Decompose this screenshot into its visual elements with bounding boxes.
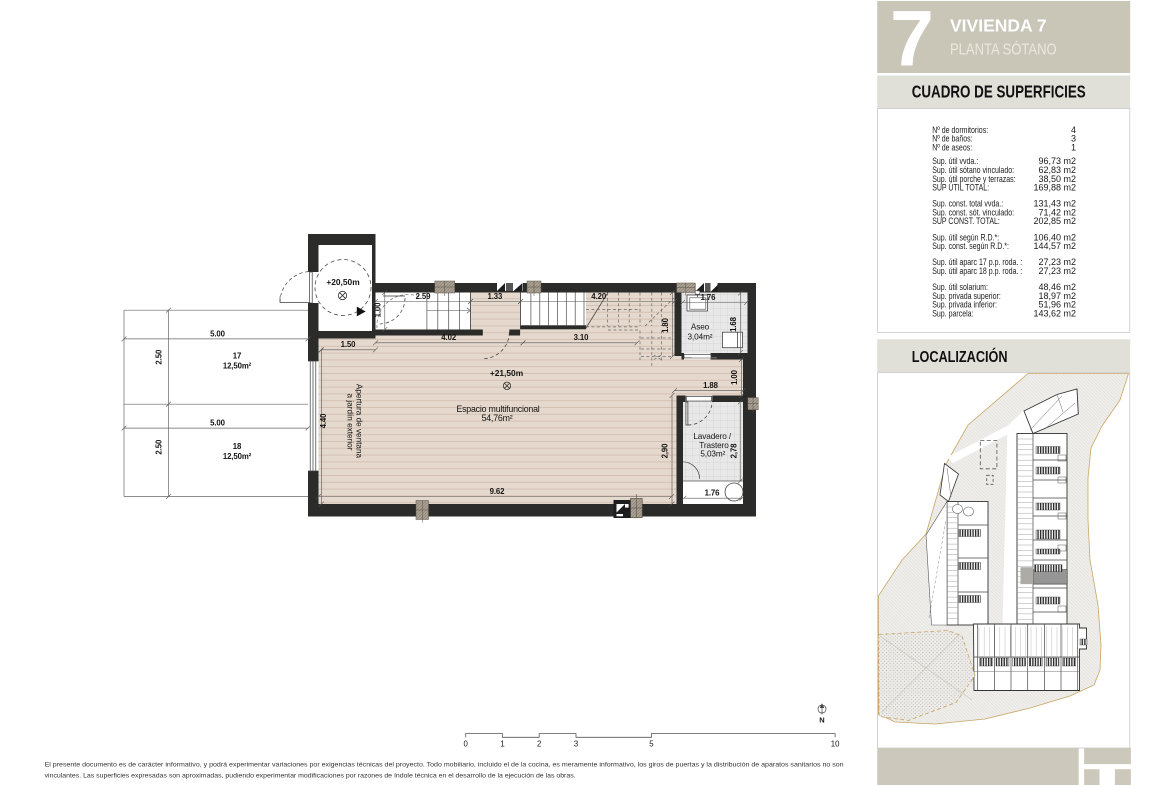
svg-text:SUP ÚTIL TOTAL:: SUP ÚTIL TOTAL: (932, 183, 989, 193)
svg-text:CUADRO DE SUPERFICIES: CUADRO DE SUPERFICIES (912, 83, 1086, 102)
svg-text:Nº de aseos:: Nº de aseos: (932, 143, 972, 153)
svg-text:54,76m²: 54,76m² (482, 413, 513, 423)
svg-text:PLANTA SÓTANO: PLANTA SÓTANO (950, 40, 1057, 59)
svg-text:4.40: 4.40 (319, 413, 328, 429)
svg-text:2.50: 2.50 (155, 439, 164, 455)
svg-text:5,03m²: 5,03m² (700, 450, 725, 459)
svg-text:1.68: 1.68 (729, 316, 738, 332)
svg-text:Apertura de ventana: Apertura de ventana (355, 384, 364, 459)
svg-text:4.02: 4.02 (441, 333, 457, 342)
svg-text:+20,50m: +20,50m (326, 277, 359, 287)
svg-text:17: 17 (233, 351, 241, 360)
svg-text:LOCALIZACIÓN: LOCALIZACIÓN (912, 346, 1008, 366)
svg-text:Aseo: Aseo (691, 322, 710, 331)
svg-text:4.20: 4.20 (591, 292, 607, 301)
svg-text:N: N (819, 716, 824, 725)
svg-text:a jardín exterior: a jardín exterior (346, 394, 355, 451)
svg-text:3,04m²: 3,04m² (688, 332, 713, 341)
svg-text:Lavadero /: Lavadero / (693, 432, 732, 441)
svg-text:27,23 m2: 27,23 m2 (1038, 266, 1076, 276)
svg-text:1: 1 (1071, 142, 1076, 152)
svg-text:5.00: 5.00 (210, 329, 226, 338)
svg-text:3: 3 (574, 740, 578, 749)
svg-text:1.50: 1.50 (341, 340, 357, 349)
svg-text:Sup. útil aparc 18 p.p. roda.: Sup. útil aparc 18 p.p. roda. : (932, 266, 1022, 276)
svg-text:1.76: 1.76 (705, 489, 721, 498)
svg-text:1.00: 1.00 (730, 369, 739, 385)
svg-text:12,50m²: 12,50m² (223, 361, 252, 370)
svg-text:2: 2 (537, 740, 541, 749)
svg-text:144,57 m2: 144,57 m2 (1033, 241, 1076, 251)
svg-text:1.80: 1.80 (661, 317, 670, 333)
svg-text:+21,50m: +21,50m (490, 368, 523, 378)
svg-text:1.00: 1.00 (374, 302, 383, 318)
svg-text:1.88: 1.88 (703, 381, 719, 390)
svg-text:2.50: 2.50 (155, 349, 164, 365)
svg-text:5.00: 5.00 (210, 419, 226, 428)
svg-text:2,90: 2,90 (660, 443, 669, 459)
svg-text:169,88 m2: 169,88 m2 (1033, 183, 1076, 193)
svg-text:Trastero: Trastero (699, 441, 729, 450)
svg-text:SUP CONST. TOTAL:: SUP CONST. TOTAL: (932, 216, 1000, 226)
svg-text:10: 10 (831, 740, 840, 749)
svg-text:18: 18 (233, 442, 242, 451)
svg-text:1: 1 (500, 740, 504, 749)
svg-text:Sup. parcela:: Sup. parcela: (932, 309, 973, 319)
svg-text:2.59: 2.59 (416, 292, 432, 301)
svg-text:202,85 m2: 202,85 m2 (1033, 216, 1076, 226)
svg-text:5: 5 (649, 740, 654, 749)
svg-text:0: 0 (464, 740, 469, 749)
svg-text:12,50m²: 12,50m² (223, 452, 252, 461)
svg-text:143,62 m2: 143,62 m2 (1033, 309, 1076, 319)
svg-text:1.76: 1.76 (701, 293, 717, 302)
svg-text:9.62: 9.62 (490, 487, 506, 496)
svg-text:Sup. const. según R.D.*:: Sup. const. según R.D.*: (932, 241, 1009, 251)
svg-text:2,78: 2,78 (730, 443, 739, 459)
svg-text:1.33: 1.33 (488, 292, 504, 301)
svg-text:3.10: 3.10 (574, 333, 590, 342)
svg-text:El presente documento es de ca: El presente documento es de carácter inf… (45, 762, 844, 769)
svg-text:vinculantes. Las superficies e: vinculantes. Las superficies expresadas … (45, 773, 576, 780)
svg-text:VIVIENDA 7: VIVIENDA 7 (950, 16, 1047, 36)
svg-text:7: 7 (890, 0, 934, 83)
